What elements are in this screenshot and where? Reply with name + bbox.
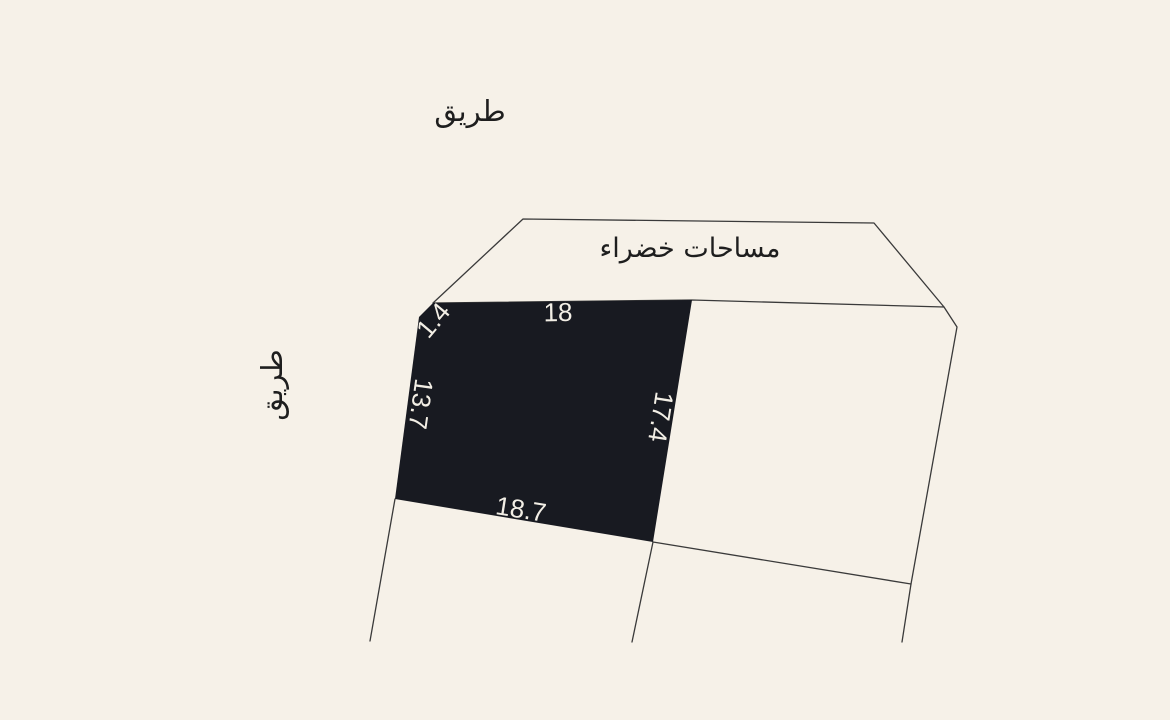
plot-map-canvas: 1.4 18 17.4 18.7 13.7 طريق مساحات خضراء … (0, 0, 1170, 720)
green-spaces-label: مساحات خضراء (600, 233, 781, 264)
dimension-top: 18 (543, 297, 572, 328)
road-label-left: طريق (255, 349, 289, 420)
plot-map-svg: 1.4 18 17.4 18.7 13.7 طريق مساحات خضراء … (0, 0, 1170, 720)
road-label-top: طريق (434, 94, 505, 128)
